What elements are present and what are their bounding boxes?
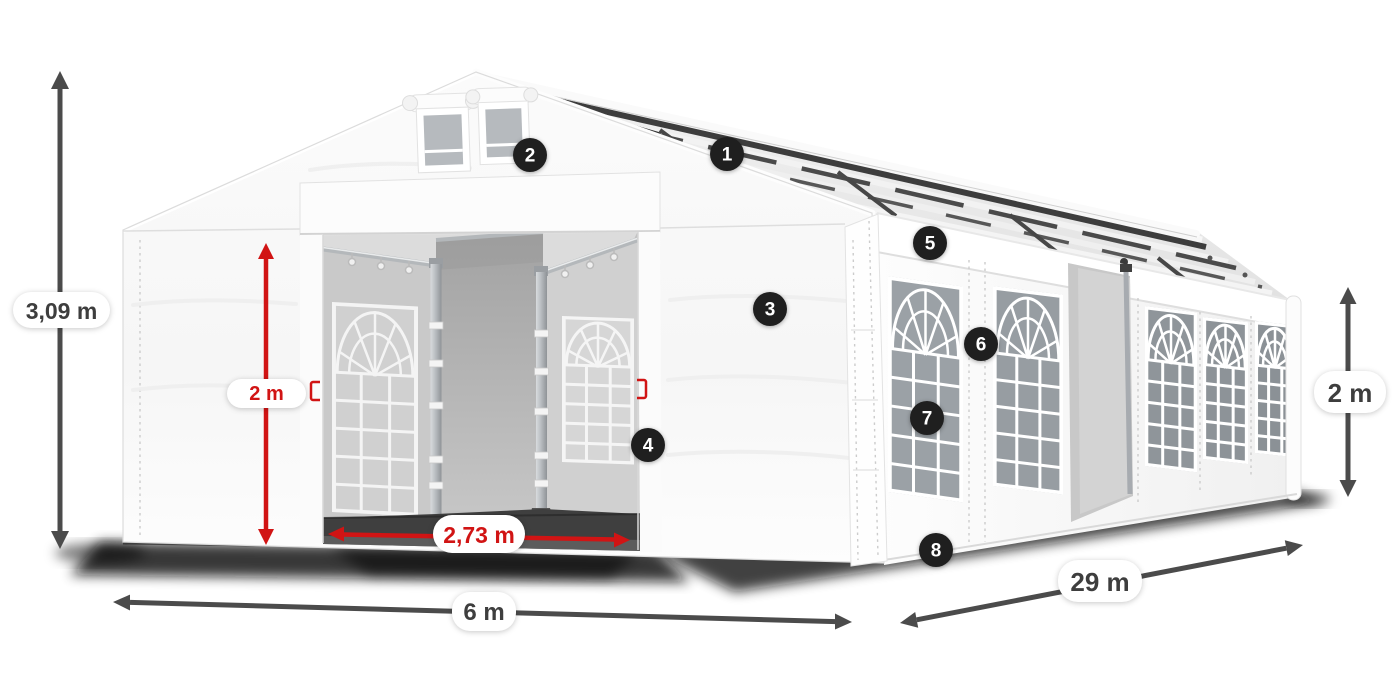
svg-text:8: 8 xyxy=(931,541,942,562)
side-window xyxy=(1145,306,1197,472)
hotspot-badge-5[interactable]: 5 xyxy=(913,226,947,260)
dimension-width: 6 m xyxy=(113,592,852,631)
entrance-post-right xyxy=(638,232,662,552)
entrance-interior xyxy=(323,231,641,551)
hotspot-badge-8[interactable]: 8 xyxy=(919,533,953,567)
entrance-header xyxy=(300,172,660,235)
interior-aisle xyxy=(436,233,543,517)
dimension-side-height: 2 m xyxy=(1314,287,1386,497)
side-entrance-opening xyxy=(1068,263,1133,522)
hotspot-badge-2[interactable]: 2 xyxy=(513,138,547,172)
svg-text:4: 4 xyxy=(643,436,654,457)
svg-text:7: 7 xyxy=(922,409,933,430)
label-entrance-width: 2,73 m xyxy=(443,522,515,548)
label-length: 29 m xyxy=(1070,567,1129,597)
hotspot-badge-7[interactable]: 7 xyxy=(910,401,944,435)
hotspot-badge-6[interactable]: 6 xyxy=(964,327,998,361)
svg-text:5: 5 xyxy=(925,234,936,255)
svg-text:2: 2 xyxy=(525,146,536,167)
side-window xyxy=(1203,317,1248,464)
label-entrance-height: 2 m xyxy=(249,383,283,405)
interior-window xyxy=(562,316,634,465)
side-window xyxy=(993,286,1063,495)
hotspot-badge-4[interactable]: 4 xyxy=(631,428,665,462)
dimension-total-height: 3,09 m xyxy=(13,71,110,549)
svg-text:6: 6 xyxy=(976,335,987,356)
label-total-height: 3,09 m xyxy=(26,298,98,324)
label-width: 6 m xyxy=(463,599,504,626)
svg-text:3: 3 xyxy=(765,300,776,321)
tent-dimension-diagram: 3,09 m 2 m 2,73 m 6 xyxy=(0,0,1400,700)
tent-illustration: 3,09 m 2 m 2,73 m 6 xyxy=(0,0,1400,700)
interior-window xyxy=(332,302,418,517)
side-window xyxy=(888,276,963,503)
end-corner-pole xyxy=(1286,296,1301,500)
label-side-height: 2 m xyxy=(1328,378,1373,408)
hotspot-badge-1[interactable]: 1 xyxy=(710,137,744,171)
hotspot-badge-3[interactable]: 3 xyxy=(753,292,787,326)
svg-text:1: 1 xyxy=(722,145,733,166)
